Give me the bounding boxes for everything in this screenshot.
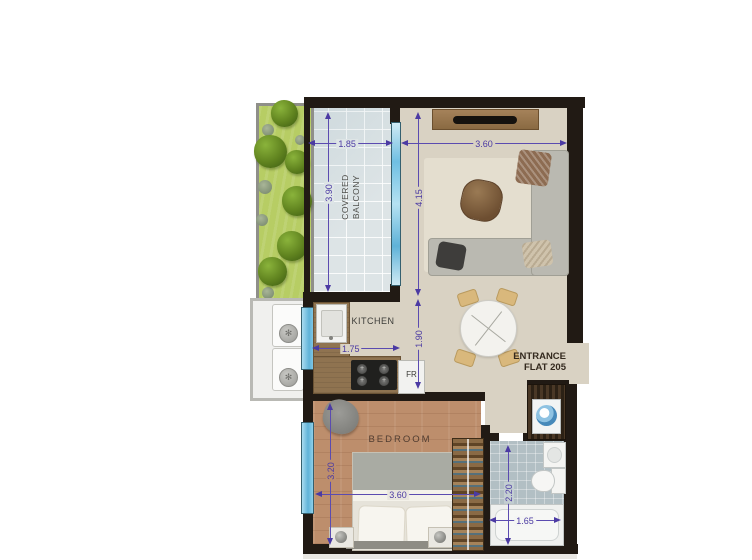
dim-value: 3.20 (326, 460, 336, 482)
shrub-icon (258, 180, 272, 194)
entrance-landing (567, 343, 589, 384)
lamp-icon (434, 531, 446, 543)
wall-right-upper (567, 97, 583, 343)
shrub-icon (256, 214, 268, 226)
bedroom-window (301, 422, 314, 514)
dim-value: 4.15 (414, 188, 424, 210)
burner-icon: + (379, 364, 389, 374)
arrow-left-icon (489, 517, 496, 523)
arrow-right-icon (560, 140, 567, 146)
faucet-icon (329, 336, 333, 340)
tree-icon (258, 257, 287, 286)
dim-value: 2.20 (504, 482, 514, 504)
dim-kitchen-width: 1.75 (312, 344, 400, 354)
dark-pillow (435, 241, 467, 271)
arrow-up-icon (415, 112, 421, 119)
wall-bath-top-left (485, 433, 499, 441)
utility-niche (527, 384, 566, 440)
wall-slider-stub-bottom (390, 284, 400, 302)
beige-pillow (521, 239, 553, 269)
washing-machine (532, 399, 561, 434)
bed-blanket (353, 453, 459, 492)
dim-hall-depth: 1.90 (413, 299, 424, 389)
washbasin (543, 442, 566, 468)
entrance-label-line1: ENTRANCE (478, 351, 566, 362)
arrow-down-icon (327, 538, 333, 545)
burner-icon: + (357, 376, 367, 386)
arrow-down-icon (415, 382, 421, 389)
dim-bathroom-depth: 2.20 (503, 445, 514, 545)
tree-icon (271, 100, 298, 127)
ac-fan-icon: ✻ (279, 368, 298, 387)
dim-value: 1.75 (340, 344, 362, 354)
wall-top (304, 97, 585, 108)
balcony-label: COVERED BALCONY (340, 162, 364, 232)
stove: + + + + (351, 360, 397, 390)
entrance-label-line2: FLAT 205 (478, 362, 566, 373)
ac-unit-icon: ✻ (272, 304, 304, 347)
sink-basin (321, 310, 343, 337)
arrow-down-icon (505, 538, 511, 545)
ac-unit-icon: ✻ (272, 348, 304, 391)
tree-icon (254, 135, 287, 168)
tv-unit (432, 109, 539, 130)
arrow-left-icon (315, 491, 322, 497)
ac-fan-icon: ✻ (279, 324, 298, 343)
wall-balcony-left (304, 100, 310, 292)
dim-value: 3.60 (387, 490, 409, 500)
floor-plan-canvas: ✻ ✻ + + + + (0, 0, 752, 560)
dining-table (460, 300, 517, 357)
arrow-left-icon (312, 345, 319, 351)
dim-living-width: 3.60 (401, 139, 567, 149)
arrow-up-icon (505, 445, 511, 452)
arrow-up-icon (327, 403, 333, 410)
basin-icon (547, 447, 562, 463)
dim-value: 1.85 (336, 139, 358, 149)
dim-bathroom-width: 1.65 (489, 516, 561, 526)
dim-value: 3.90 (324, 182, 334, 204)
arrow-right-icon (393, 345, 400, 351)
dim-bedroom-depth: 3.20 (325, 403, 336, 545)
entrance-label: ENTRANCE FLAT 205 (478, 351, 566, 375)
arrow-left-icon (401, 140, 408, 146)
dim-bedroom-width: 3.60 (315, 490, 481, 500)
dim-value: 1.65 (514, 516, 536, 526)
dim-balcony-width: 1.85 (308, 139, 393, 149)
burner-icon: + (357, 364, 367, 374)
tv-icon (453, 116, 517, 124)
kitchen-label: KITCHEN (342, 316, 404, 330)
wall-bottom-threshold (303, 554, 577, 559)
burner-icon: + (379, 376, 389, 386)
arrow-down-icon (325, 285, 331, 292)
arrow-right-icon (554, 517, 561, 523)
knit-pillow (515, 149, 552, 187)
dim-balcony-depth: 3.90 (323, 112, 334, 292)
tree-icon (277, 231, 307, 261)
arrow-right-icon (474, 491, 481, 497)
arrow-right-icon (386, 140, 393, 146)
arrow-left-icon (308, 140, 315, 146)
arrow-up-icon (415, 299, 421, 306)
washer-drum-icon (536, 405, 557, 426)
lamp-icon (335, 531, 347, 543)
vestibule-floor (485, 392, 527, 433)
nightstand (428, 527, 453, 548)
wall-balcony-kitchen (304, 292, 400, 302)
balcony-label-line1: COVERED (340, 162, 351, 232)
dim-value: 3.60 (473, 139, 495, 149)
arrow-down-icon (415, 289, 421, 296)
dim-value: 1.90 (414, 328, 424, 350)
bedroom-label: BEDROOM (360, 434, 440, 447)
balcony-label-line2: BALCONY (351, 162, 362, 232)
table-decor-line (475, 311, 502, 346)
dim-living-depth: 4.15 (413, 112, 424, 296)
toilet (531, 470, 555, 492)
arrow-up-icon (325, 112, 331, 119)
